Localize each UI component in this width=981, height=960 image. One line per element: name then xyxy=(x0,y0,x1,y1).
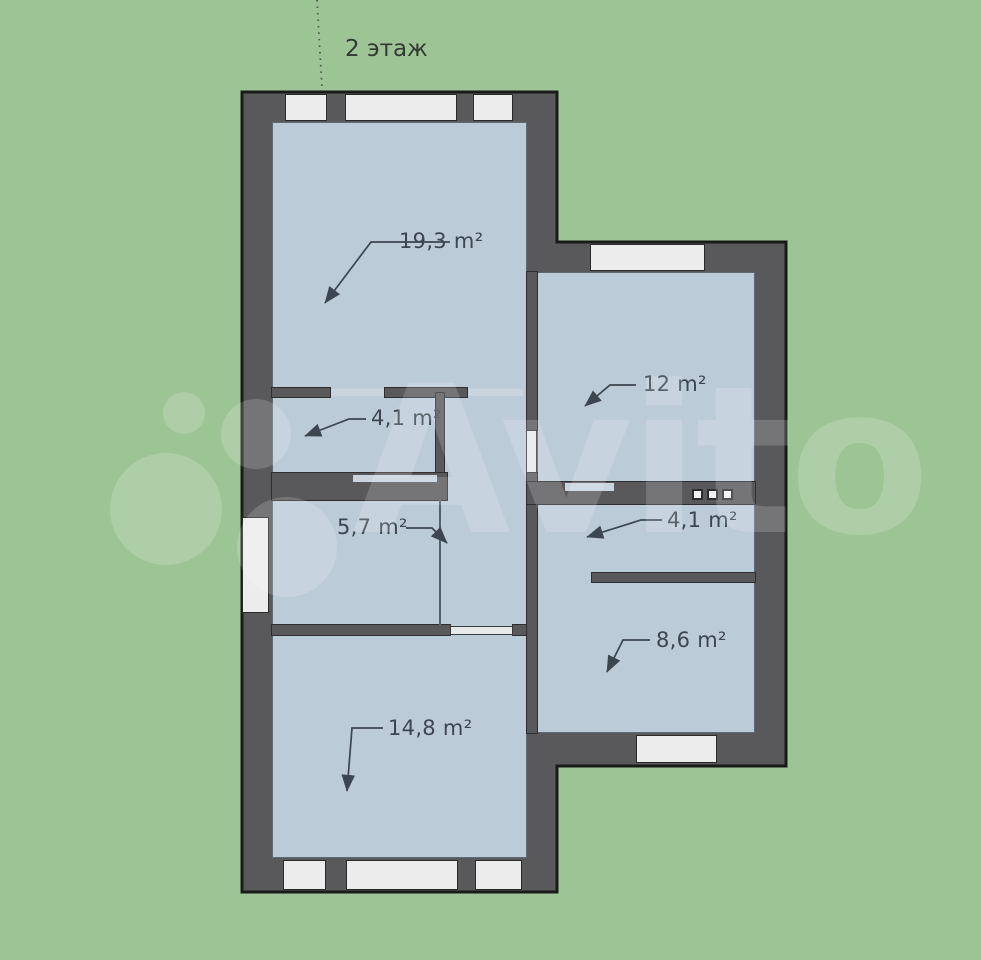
window xyxy=(285,94,327,121)
wall-below-19-3-a xyxy=(272,388,330,397)
door-opening-19-3-a xyxy=(330,389,385,396)
room-label-5-7: 5,7 m² xyxy=(337,516,408,538)
window xyxy=(590,244,705,271)
wall-below-12 xyxy=(527,482,755,504)
window xyxy=(636,735,717,763)
room-label-19-3: 19,3 m² xyxy=(399,230,483,252)
window xyxy=(283,860,326,890)
wall-above-14-8-b xyxy=(513,625,527,635)
window xyxy=(345,94,457,121)
stair-rail-line xyxy=(439,500,441,625)
floorplan-canvas: 19,3 m² 12 m² 4,1 m² 5,7 m² 4,1 m² 8,6 m… xyxy=(0,0,981,960)
room-label-12: 12 m² xyxy=(643,373,707,395)
room-label-14-8: 14,8 m² xyxy=(388,717,472,739)
room-label-4-1-left: 4,1 m² xyxy=(371,407,442,429)
door-opening-mid xyxy=(353,475,437,482)
wall-above-14-8-a xyxy=(272,625,450,635)
vent-square xyxy=(707,489,718,500)
window xyxy=(242,517,269,613)
door-opening-12 xyxy=(565,483,614,491)
window xyxy=(346,860,458,890)
wall-below-19-3-b xyxy=(385,388,467,397)
window xyxy=(473,94,513,121)
spine-wall-upper xyxy=(527,272,537,430)
room-label-8-6: 8,6 m² xyxy=(656,629,727,651)
wall-between-4-1r-8-6 xyxy=(592,573,755,582)
vent-square xyxy=(692,489,703,500)
wall-4-1-left-east xyxy=(436,393,444,473)
spine-door-opening xyxy=(526,430,537,473)
spine-wall-lower xyxy=(527,473,537,733)
door-opening-14-8 xyxy=(450,626,513,635)
room-label-4-1-right: 4,1 m² xyxy=(667,509,738,531)
door-opening-corridor xyxy=(467,389,523,396)
window xyxy=(475,860,522,890)
vent-square xyxy=(722,489,733,500)
